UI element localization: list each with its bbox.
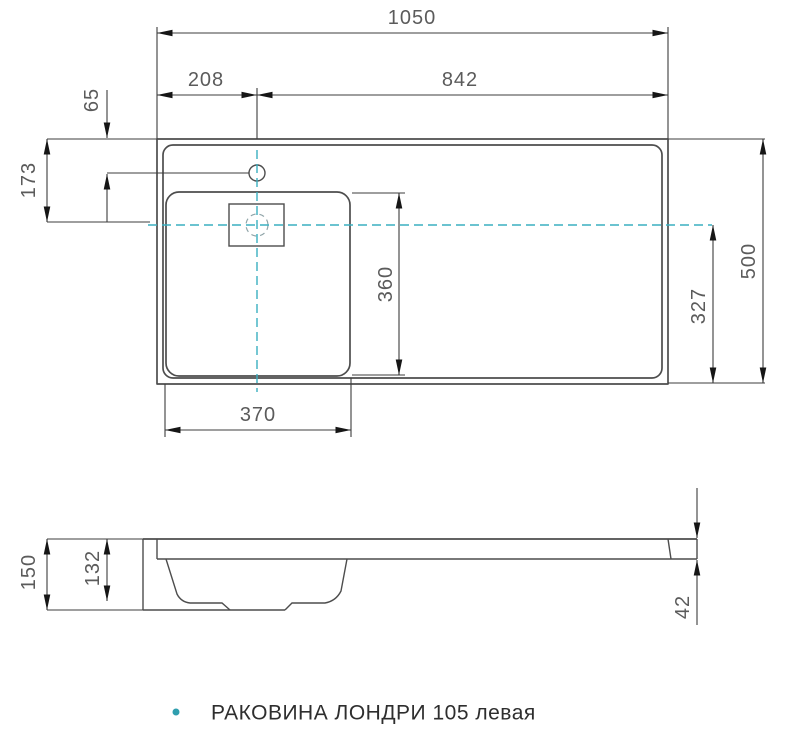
dim-label-basin-depth: 360 [375, 266, 397, 302]
dim-label-span-right: 842 [442, 69, 478, 91]
side-view: 150 132 42 [18, 488, 697, 625]
countertop-outer-edge [157, 139, 668, 384]
dim-label-slab-thickness: 42 [672, 595, 694, 619]
dim-label-faucet-from-back: 65 [81, 88, 103, 112]
dim-basin-width: 370 [165, 404, 351, 430]
dim-label-faucet-offset: 208 [188, 69, 224, 91]
dim-total-width: 1050 [157, 7, 668, 33]
dim-label-centerline-to-front: 327 [688, 288, 710, 324]
dim-centerline-to-front: 327 [688, 225, 713, 383]
dim-basin-depth: 360 [375, 193, 399, 375]
countertop-inner-edge [163, 145, 662, 378]
dim-label-basin-width: 370 [240, 404, 276, 426]
drawing-page: 1050 208 842 65 173 370 360 327 [0, 0, 800, 750]
dim-total-height: 150 [18, 539, 47, 610]
dim-faucet-offset: 208 [157, 69, 257, 95]
dim-bowl-height: 132 [82, 539, 107, 601]
side-bowl-silhouette [166, 559, 347, 610]
basin-outline [166, 192, 350, 376]
dim-total-depth: 500 [738, 139, 763, 383]
side-edge-chamfer [668, 539, 671, 559]
dim-label-total-depth: 500 [738, 243, 760, 279]
caption: РАКОВИНА ЛОНДРИ 105 левая [173, 701, 536, 724]
dim-faucet-from-back: 65 [81, 88, 107, 222]
dim-label-bowl-height: 132 [82, 550, 104, 586]
dim-label-centerline-from-back: 173 [18, 162, 40, 198]
caption-bullet-icon [173, 709, 180, 716]
dim-span-right: 842 [257, 69, 668, 95]
dim-slab-thickness: 42 [672, 488, 697, 625]
top-view: 1050 208 842 65 173 370 360 327 [18, 7, 765, 437]
dim-label-total-width: 1050 [388, 7, 437, 29]
technical-drawing: 1050 208 842 65 173 370 360 327 [0, 0, 800, 750]
dim-label-total-height: 150 [18, 554, 40, 590]
caption-text: РАКОВИНА ЛОНДРИ 105 левая [211, 701, 536, 724]
dim-centerline-from-back: 173 [18, 139, 47, 222]
